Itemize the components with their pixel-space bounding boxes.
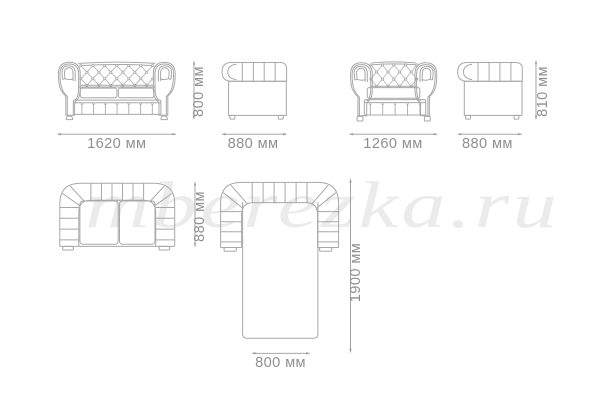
svg-text:800 мм: 800 мм — [191, 66, 207, 117]
svg-text:1900 мм: 1900 мм — [348, 243, 364, 302]
svg-text:1260 мм: 1260 мм — [363, 136, 422, 152]
svg-text:810 мм: 810 мм — [535, 66, 551, 117]
svg-text:880 мм: 880 мм — [192, 191, 208, 242]
svg-text:1620 мм: 1620 мм — [87, 136, 146, 152]
svg-text:800 мм: 800 мм — [255, 355, 306, 371]
svg-text:880 мм: 880 мм — [228, 136, 279, 152]
svg-text:880 мм: 880 мм — [462, 136, 513, 152]
